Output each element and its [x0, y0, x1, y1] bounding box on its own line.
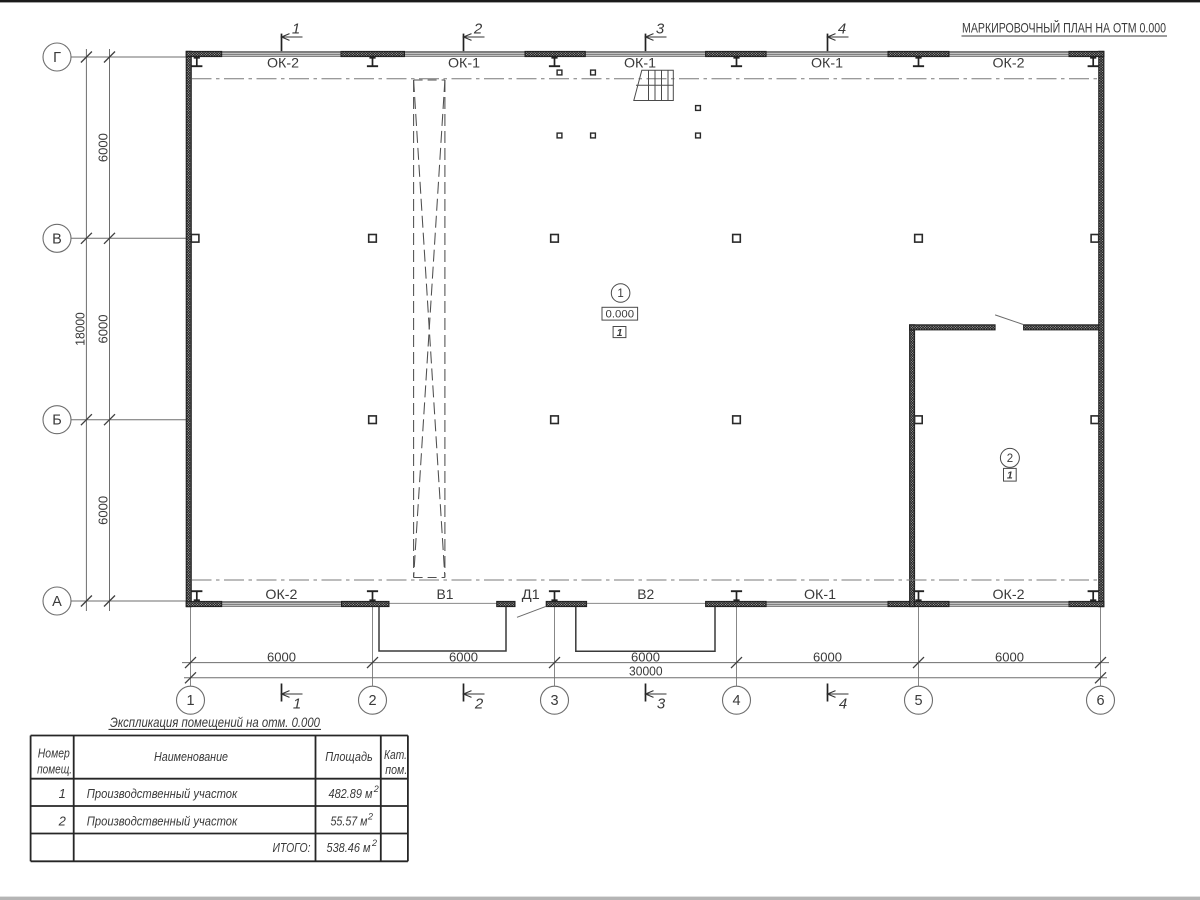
- svg-text:6000: 6000: [95, 496, 110, 525]
- svg-text:3: 3: [656, 21, 665, 38]
- svg-text:0.000: 0.000: [606, 309, 635, 321]
- svg-text:2: 2: [371, 838, 377, 848]
- svg-text:2: 2: [473, 21, 483, 38]
- svg-text:Д1: Д1: [522, 587, 540, 602]
- svg-text:1: 1: [59, 786, 66, 801]
- svg-text:2: 2: [58, 814, 67, 829]
- svg-text:МАРКИРОВОЧНЫЙ ПЛАН НА ОТМ 0.00: МАРКИРОВОЧНЫЙ ПЛАН НА ОТМ 0.000: [962, 20, 1166, 35]
- svg-text:пом.: пом.: [385, 763, 407, 777]
- svg-text:1: 1: [293, 696, 301, 713]
- svg-text:6000: 6000: [95, 133, 110, 162]
- svg-text:1: 1: [1007, 470, 1013, 482]
- svg-text:ОК-1: ОК-1: [448, 56, 480, 71]
- svg-text:2: 2: [373, 784, 379, 794]
- svg-text:ОК-1: ОК-1: [811, 56, 843, 71]
- svg-text:А: А: [52, 594, 62, 610]
- svg-text:ОК-1: ОК-1: [804, 587, 836, 602]
- svg-text:ОК-2: ОК-2: [265, 587, 297, 602]
- svg-text:Экспликация помещений на отм.: Экспликация помещений на отм. 0.000: [110, 715, 320, 730]
- svg-text:Производственный участок: Производственный участок: [87, 814, 238, 829]
- svg-text:Кат.: Кат.: [384, 748, 407, 762]
- svg-text:30000: 30000: [629, 663, 663, 678]
- svg-text:5: 5: [914, 693, 922, 709]
- svg-text:6000: 6000: [95, 315, 110, 344]
- svg-text:Б: Б: [52, 413, 62, 429]
- svg-text:1: 1: [617, 327, 623, 339]
- svg-text:В: В: [52, 231, 62, 247]
- svg-text:1: 1: [292, 21, 300, 38]
- svg-text:2: 2: [367, 811, 373, 821]
- svg-text:1: 1: [617, 288, 623, 300]
- svg-text:2: 2: [474, 696, 484, 713]
- svg-text:1: 1: [186, 693, 194, 709]
- svg-text:В2: В2: [637, 587, 654, 602]
- svg-text:Номер: Номер: [38, 746, 70, 760]
- svg-text:6000: 6000: [813, 649, 842, 664]
- svg-text:В1: В1: [437, 587, 454, 602]
- svg-text:3: 3: [657, 696, 666, 713]
- svg-text:ИТОГО:: ИТОГО:: [273, 840, 311, 855]
- svg-text:55.57 м: 55.57 м: [331, 814, 368, 829]
- svg-text:6000: 6000: [995, 649, 1024, 664]
- svg-text:4: 4: [838, 21, 846, 38]
- svg-text:2: 2: [1007, 453, 1013, 465]
- svg-text:3: 3: [550, 693, 558, 709]
- svg-text:Наименование: Наименование: [154, 750, 228, 764]
- svg-text:ОК-2: ОК-2: [267, 56, 299, 71]
- svg-text:4: 4: [732, 693, 740, 709]
- svg-text:ОК-1: ОК-1: [624, 56, 656, 71]
- svg-text:6: 6: [1096, 693, 1104, 709]
- svg-text:18000: 18000: [72, 312, 87, 346]
- svg-text:4: 4: [839, 696, 847, 713]
- svg-text:2: 2: [368, 693, 376, 709]
- svg-text:Г: Г: [53, 50, 61, 66]
- svg-text:Площадь: Площадь: [325, 750, 373, 764]
- svg-text:ОК-2: ОК-2: [993, 56, 1025, 71]
- svg-text:Производственный участок: Производственный участок: [87, 786, 238, 801]
- svg-text:6000: 6000: [267, 649, 296, 664]
- svg-text:помещ.: помещ.: [37, 763, 72, 777]
- svg-text:538.46 м: 538.46 м: [327, 840, 371, 855]
- svg-text:482.89 м: 482.89 м: [329, 786, 373, 801]
- svg-text:ОК-2: ОК-2: [993, 587, 1025, 602]
